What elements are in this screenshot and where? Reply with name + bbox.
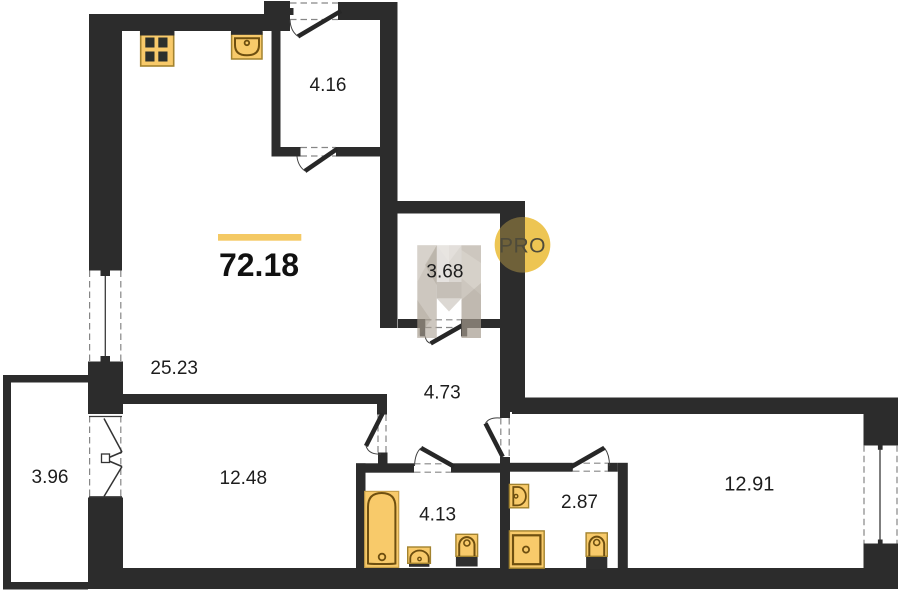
svg-text:3.96: 3.96 [32, 467, 69, 488]
svg-text:12.91: 12.91 [724, 474, 774, 496]
svg-text:2.87: 2.87 [561, 492, 598, 513]
svg-text:PRO: PRO [499, 235, 546, 258]
svg-text:3.68: 3.68 [426, 262, 463, 283]
svg-text:4.73: 4.73 [424, 383, 461, 404]
svg-text:12.48: 12.48 [220, 468, 268, 489]
svg-text:4.13: 4.13 [419, 505, 456, 526]
svg-text:72.18: 72.18 [219, 247, 299, 283]
svg-text:4.16: 4.16 [310, 75, 347, 96]
svg-text:25.23: 25.23 [150, 358, 198, 379]
